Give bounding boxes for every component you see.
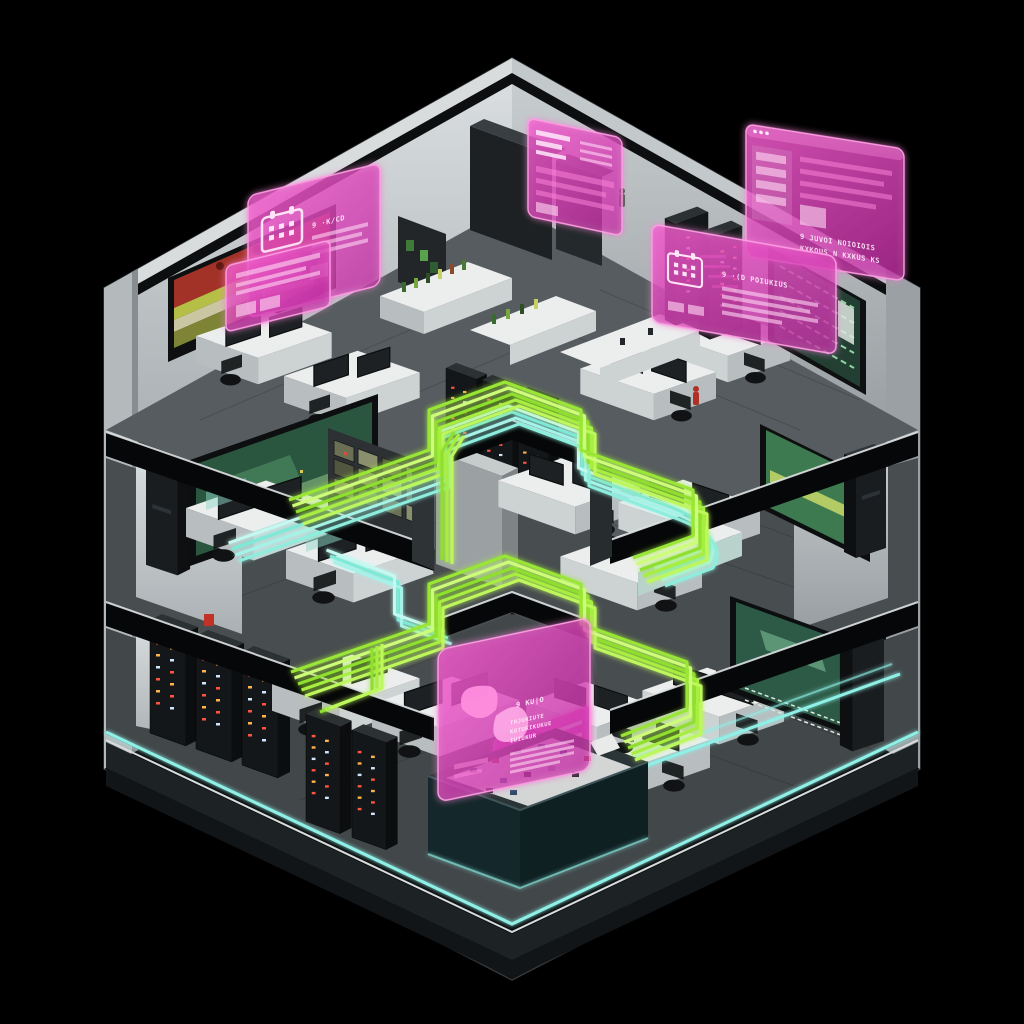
person-figure [693,386,699,405]
scene-canvas: 9 JUVOI NOIOIOIS KXKOUS N KXKUS KS 9 ·(D… [0,0,1024,1024]
server-rack [352,724,398,849]
alarm-box [204,614,214,626]
holo-panel-bottom-butterfly: 9 KU|O THJUKIUTE KOTUKIKUKUE IUIUKUR [438,618,590,802]
isometric-building-scene: 9 JUVOI NOIOIOIS KXKOUS N KXKUS KS 9 ·(D… [0,0,1024,1024]
server-rack [306,708,352,833]
holo-panel-top-center [528,118,622,236]
tv-detail [216,262,224,270]
